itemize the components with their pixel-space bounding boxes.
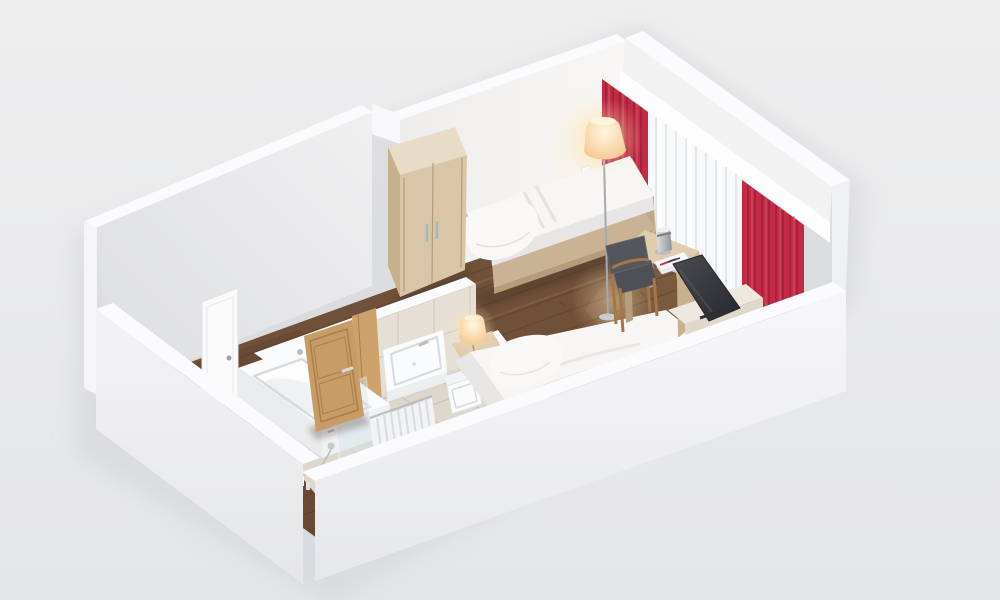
entry-door-handle — [227, 356, 232, 361]
tub-faucet — [297, 349, 303, 355]
floorplan-render — [0, 0, 1000, 600]
corridor-wall-end-cap — [84, 221, 97, 395]
bedside-lamp-stem — [473, 345, 474, 352]
toiletry-bottle-2 — [306, 482, 310, 490]
basin-drain — [412, 362, 416, 366]
hand-shower-head — [328, 443, 335, 450]
floor-lamp-shade-rim — [590, 117, 616, 125]
bedside-lamp — [445, 303, 497, 355]
bedside-lamp-rim — [464, 316, 480, 321]
desk-lamp-top — [656, 228, 670, 233]
wardrobe — [388, 127, 472, 303]
